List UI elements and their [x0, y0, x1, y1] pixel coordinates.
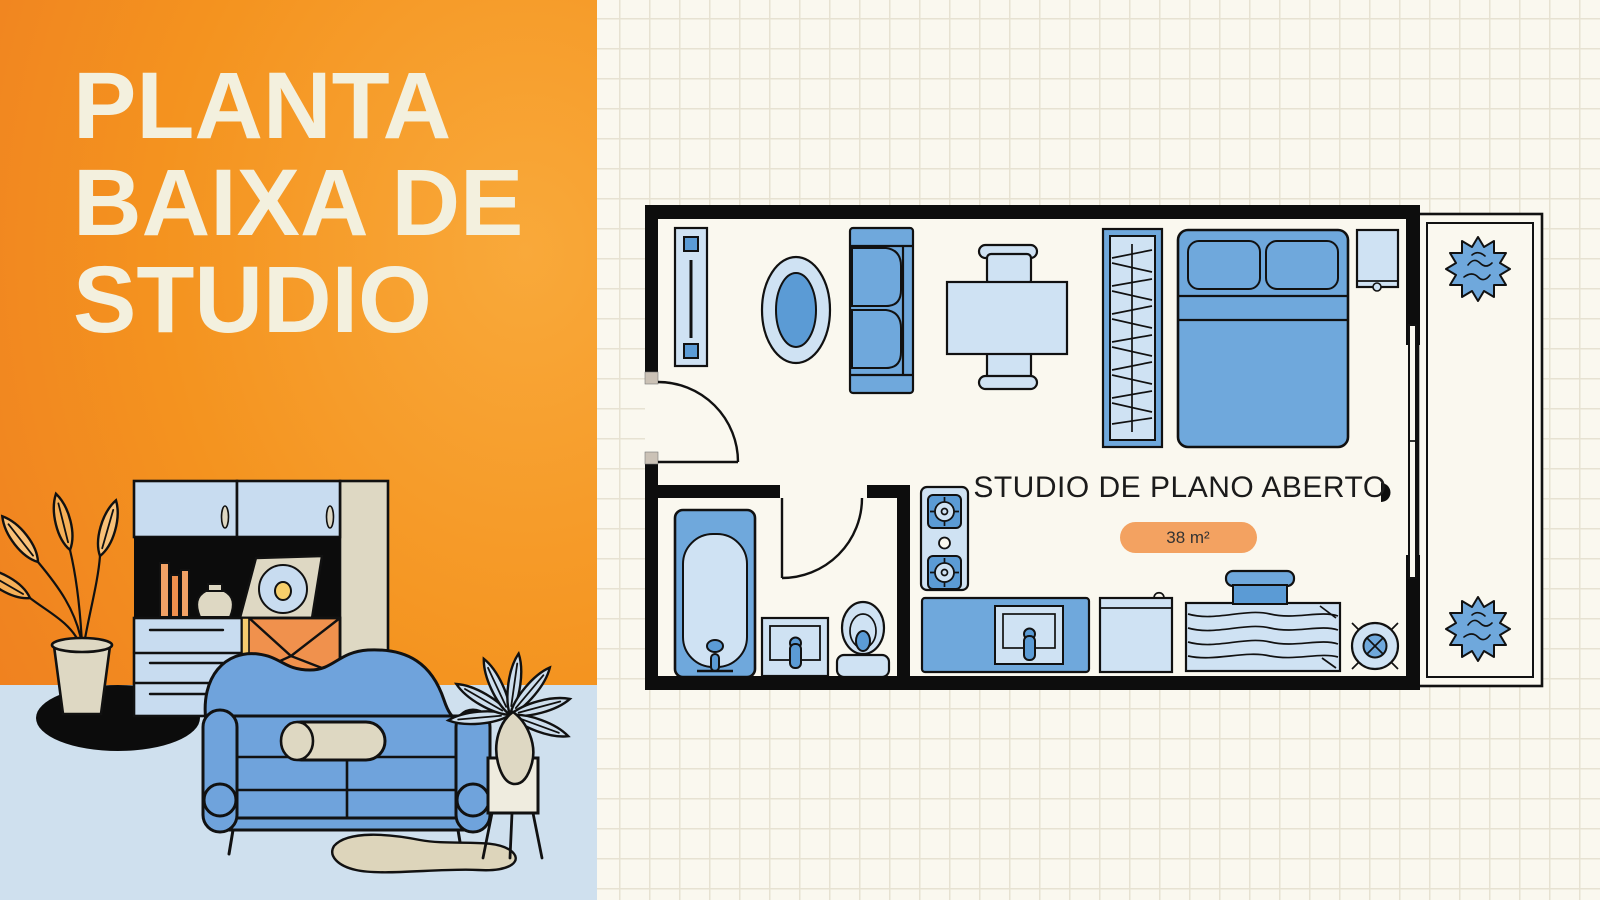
dining-table: [947, 282, 1067, 354]
balcony: [1418, 214, 1542, 686]
door-handle-icon: [222, 506, 229, 528]
fridge: [1100, 593, 1172, 672]
round-stool: [1352, 623, 1398, 669]
area-badge: 38 m²: [1120, 522, 1257, 553]
page-title: PLANTA BAIXA DE STUDIO: [73, 58, 523, 349]
left-panel: PLANTA BAIXA DE STUDIO: [0, 0, 597, 900]
pillow: [1188, 241, 1260, 289]
potted-plant: [0, 492, 123, 714]
door-handle-icon: [327, 506, 334, 528]
title-line-1: PLANTA: [73, 58, 523, 155]
counter-pot: [1226, 571, 1294, 586]
wall-console: [675, 228, 707, 366]
bolster-cushion: [281, 722, 385, 760]
kitchen-sink-counter: [922, 598, 1089, 672]
bathroom-sink: [762, 618, 828, 676]
floor-plan: STUDIO DE PLANO ABERTO 38 m²: [597, 0, 1600, 900]
area-badge-text: 38 m²: [1166, 528, 1210, 547]
right-panel: STUDIO DE PLANO ABERTO 38 m²: [597, 0, 1600, 900]
cabinet-side-panel: [340, 481, 388, 673]
double-bed: [1178, 230, 1348, 447]
stove: [921, 487, 968, 590]
door-jamb: [645, 372, 658, 384]
cabinet-door-left: [134, 481, 237, 537]
nightstand: [1357, 230, 1398, 291]
title-line-3: STUDIO: [73, 252, 523, 349]
sofa: [850, 228, 913, 393]
cabinet-door-right: [237, 481, 340, 537]
stove-knob: [939, 538, 950, 549]
wardrobe: [1103, 229, 1162, 447]
oval-rug: [762, 257, 830, 363]
door-jamb: [645, 452, 658, 464]
plan-label: STUDIO DE PLANO ABERTO: [973, 471, 1386, 504]
toilet: [837, 602, 889, 677]
title-line-2: BAIXA DE: [73, 155, 523, 252]
bathtub: [675, 510, 755, 677]
living-room-illustration: [0, 440, 597, 900]
sofa: [203, 650, 490, 854]
sofa-skirt: [215, 818, 477, 830]
pillow: [1266, 241, 1338, 289]
sliding-balcony-door: [1409, 325, 1416, 578]
poster: PLANTA BAIXA DE STUDIO: [0, 0, 1600, 900]
plant-pot: [54, 646, 110, 714]
